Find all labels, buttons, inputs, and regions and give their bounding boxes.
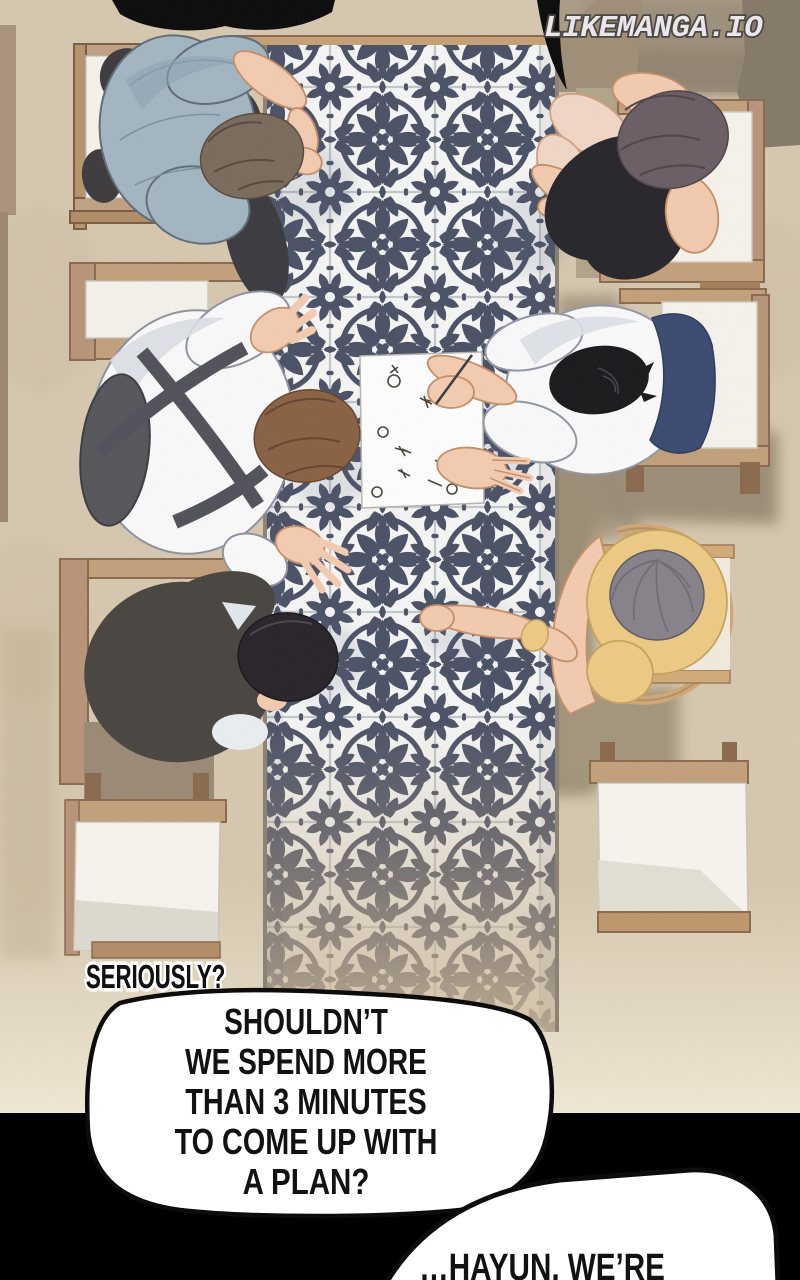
svg-text:TO COME UP WITH: TO COME UP WITH bbox=[175, 1121, 438, 1162]
svg-text:WE SPEND MORE: WE SPEND MORE bbox=[185, 1042, 427, 1082]
svg-text:SHOULDN’T: SHOULDN’T bbox=[224, 1002, 388, 1042]
svg-text:THAN 3 MINUTES: THAN 3 MINUTES bbox=[185, 1081, 426, 1122]
svg-text:…HAYUN, WE’RE: …HAYUN, WE’RE bbox=[419, 1247, 665, 1280]
svg-text:A PLAN?: A PLAN? bbox=[243, 1161, 370, 1201]
svg-text:LIKEMANGA.IO: LIKEMANGA.IO bbox=[544, 11, 763, 46]
